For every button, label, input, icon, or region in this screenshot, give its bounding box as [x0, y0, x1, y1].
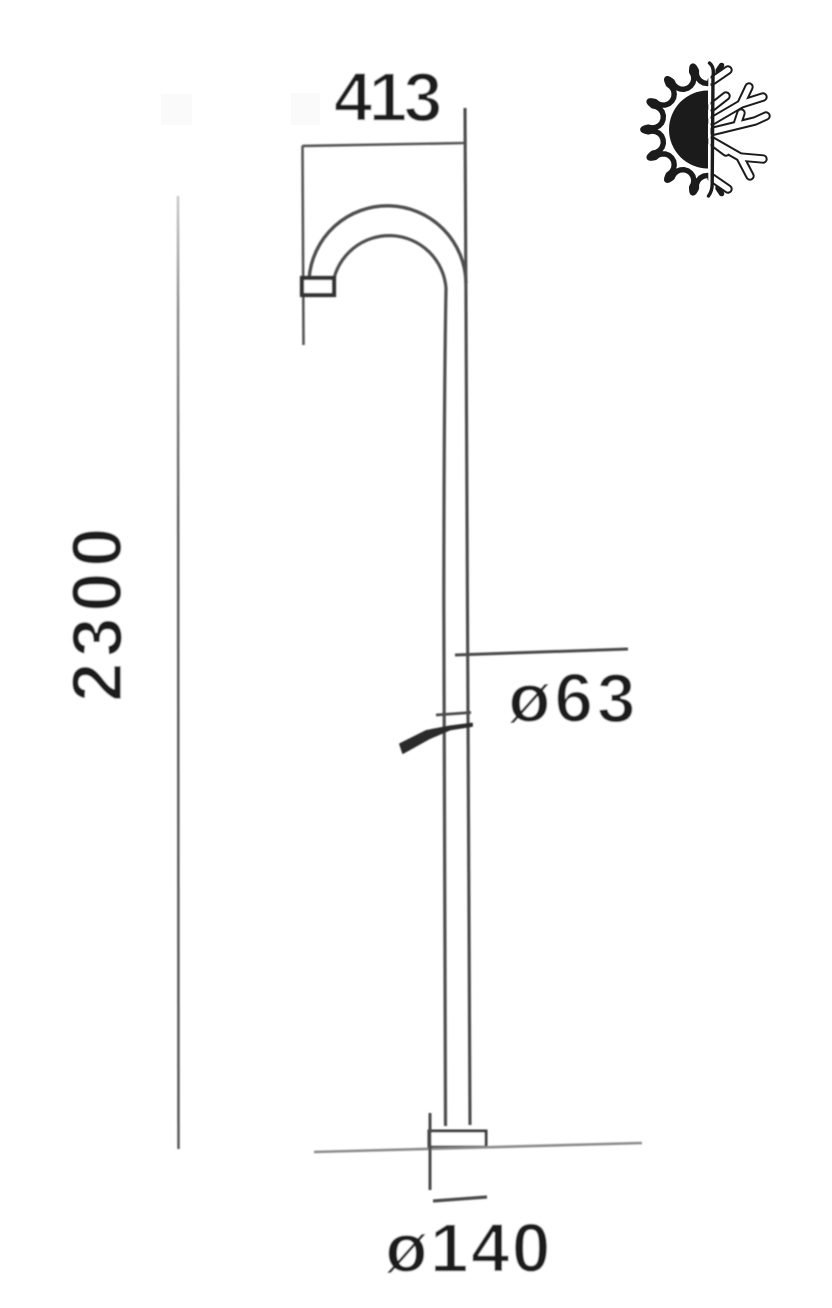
svg-text:ø140: ø140 — [385, 1209, 553, 1287]
svg-text:413: 413 — [334, 58, 441, 136]
svg-text:2300: 2300 — [59, 522, 138, 702]
svg-text:ø63: ø63 — [508, 659, 639, 737]
